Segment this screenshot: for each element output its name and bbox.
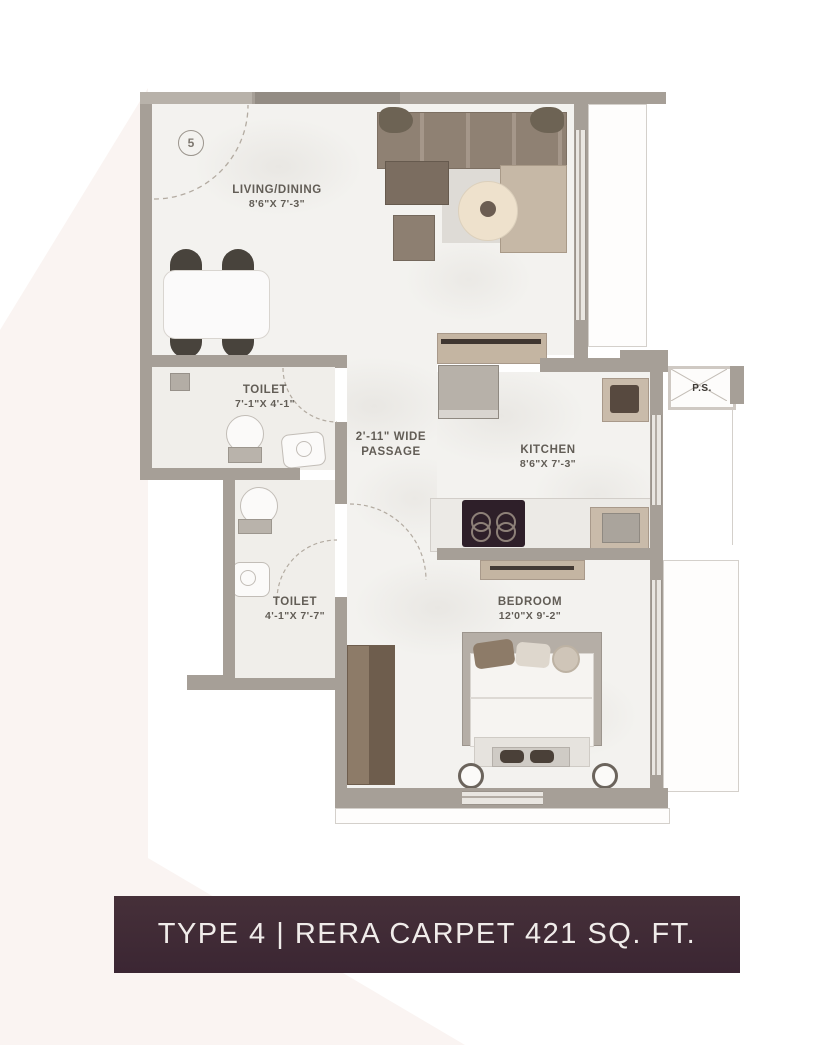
toilet1-label: TOILET 7'-1"X 4'-1" [235,383,295,412]
toilet1-name: TOILET [235,383,295,398]
toilet1-dims: 7'-1"X 4'-1" [235,398,295,412]
toilet2-dims: 4'-1"X 7'-7" [265,610,325,624]
kitchen-dims: 8'6"X 7'-3" [520,458,576,472]
floor-plan-page: { "banner": { "text": "TYPE 4 | RERA CAR… [0,0,825,1045]
kitchen-name: KITCHEN [520,443,576,458]
entrance-door-number: 5 [188,136,195,150]
toilet2-name: TOILET [265,595,325,610]
passage-line2: PASSAGE [356,445,426,460]
toilet2-door-swing-arc [277,540,337,600]
bedroom-door-swing-arc [350,504,426,580]
toilet2-label: TOILET 4'-1"X 7'-7" [265,595,325,624]
floor-plan: P.S. 5 LIVING/DINING 8'6"X 7'-3" TOILET … [140,85,760,845]
bedroom-label: BEDROOM 12'0"X 9'-2" [498,595,562,624]
bedroom-dims: 12'0"X 9'-2" [498,610,562,624]
living-dining-dims: 8'6"X 7'-3" [232,198,322,212]
type-banner-text: TYPE 4 | RERA CARPET 421 SQ. FT. [158,918,697,951]
passage-label: 2'-11" WIDE PASSAGE [356,430,426,460]
living-dining-name: LIVING/DINING [232,183,322,198]
entrance-door-number-badge: 5 [178,130,204,156]
kitchen-label: KITCHEN 8'6"X 7'-3" [520,443,576,472]
type-banner: TYPE 4 | RERA CARPET 421 SQ. FT. [114,896,740,973]
passage-line1: 2'-11" WIDE [356,430,426,445]
bedroom-name: BEDROOM [498,595,562,610]
living-dining-label: LIVING/DINING 8'6"X 7'-3" [232,183,322,212]
